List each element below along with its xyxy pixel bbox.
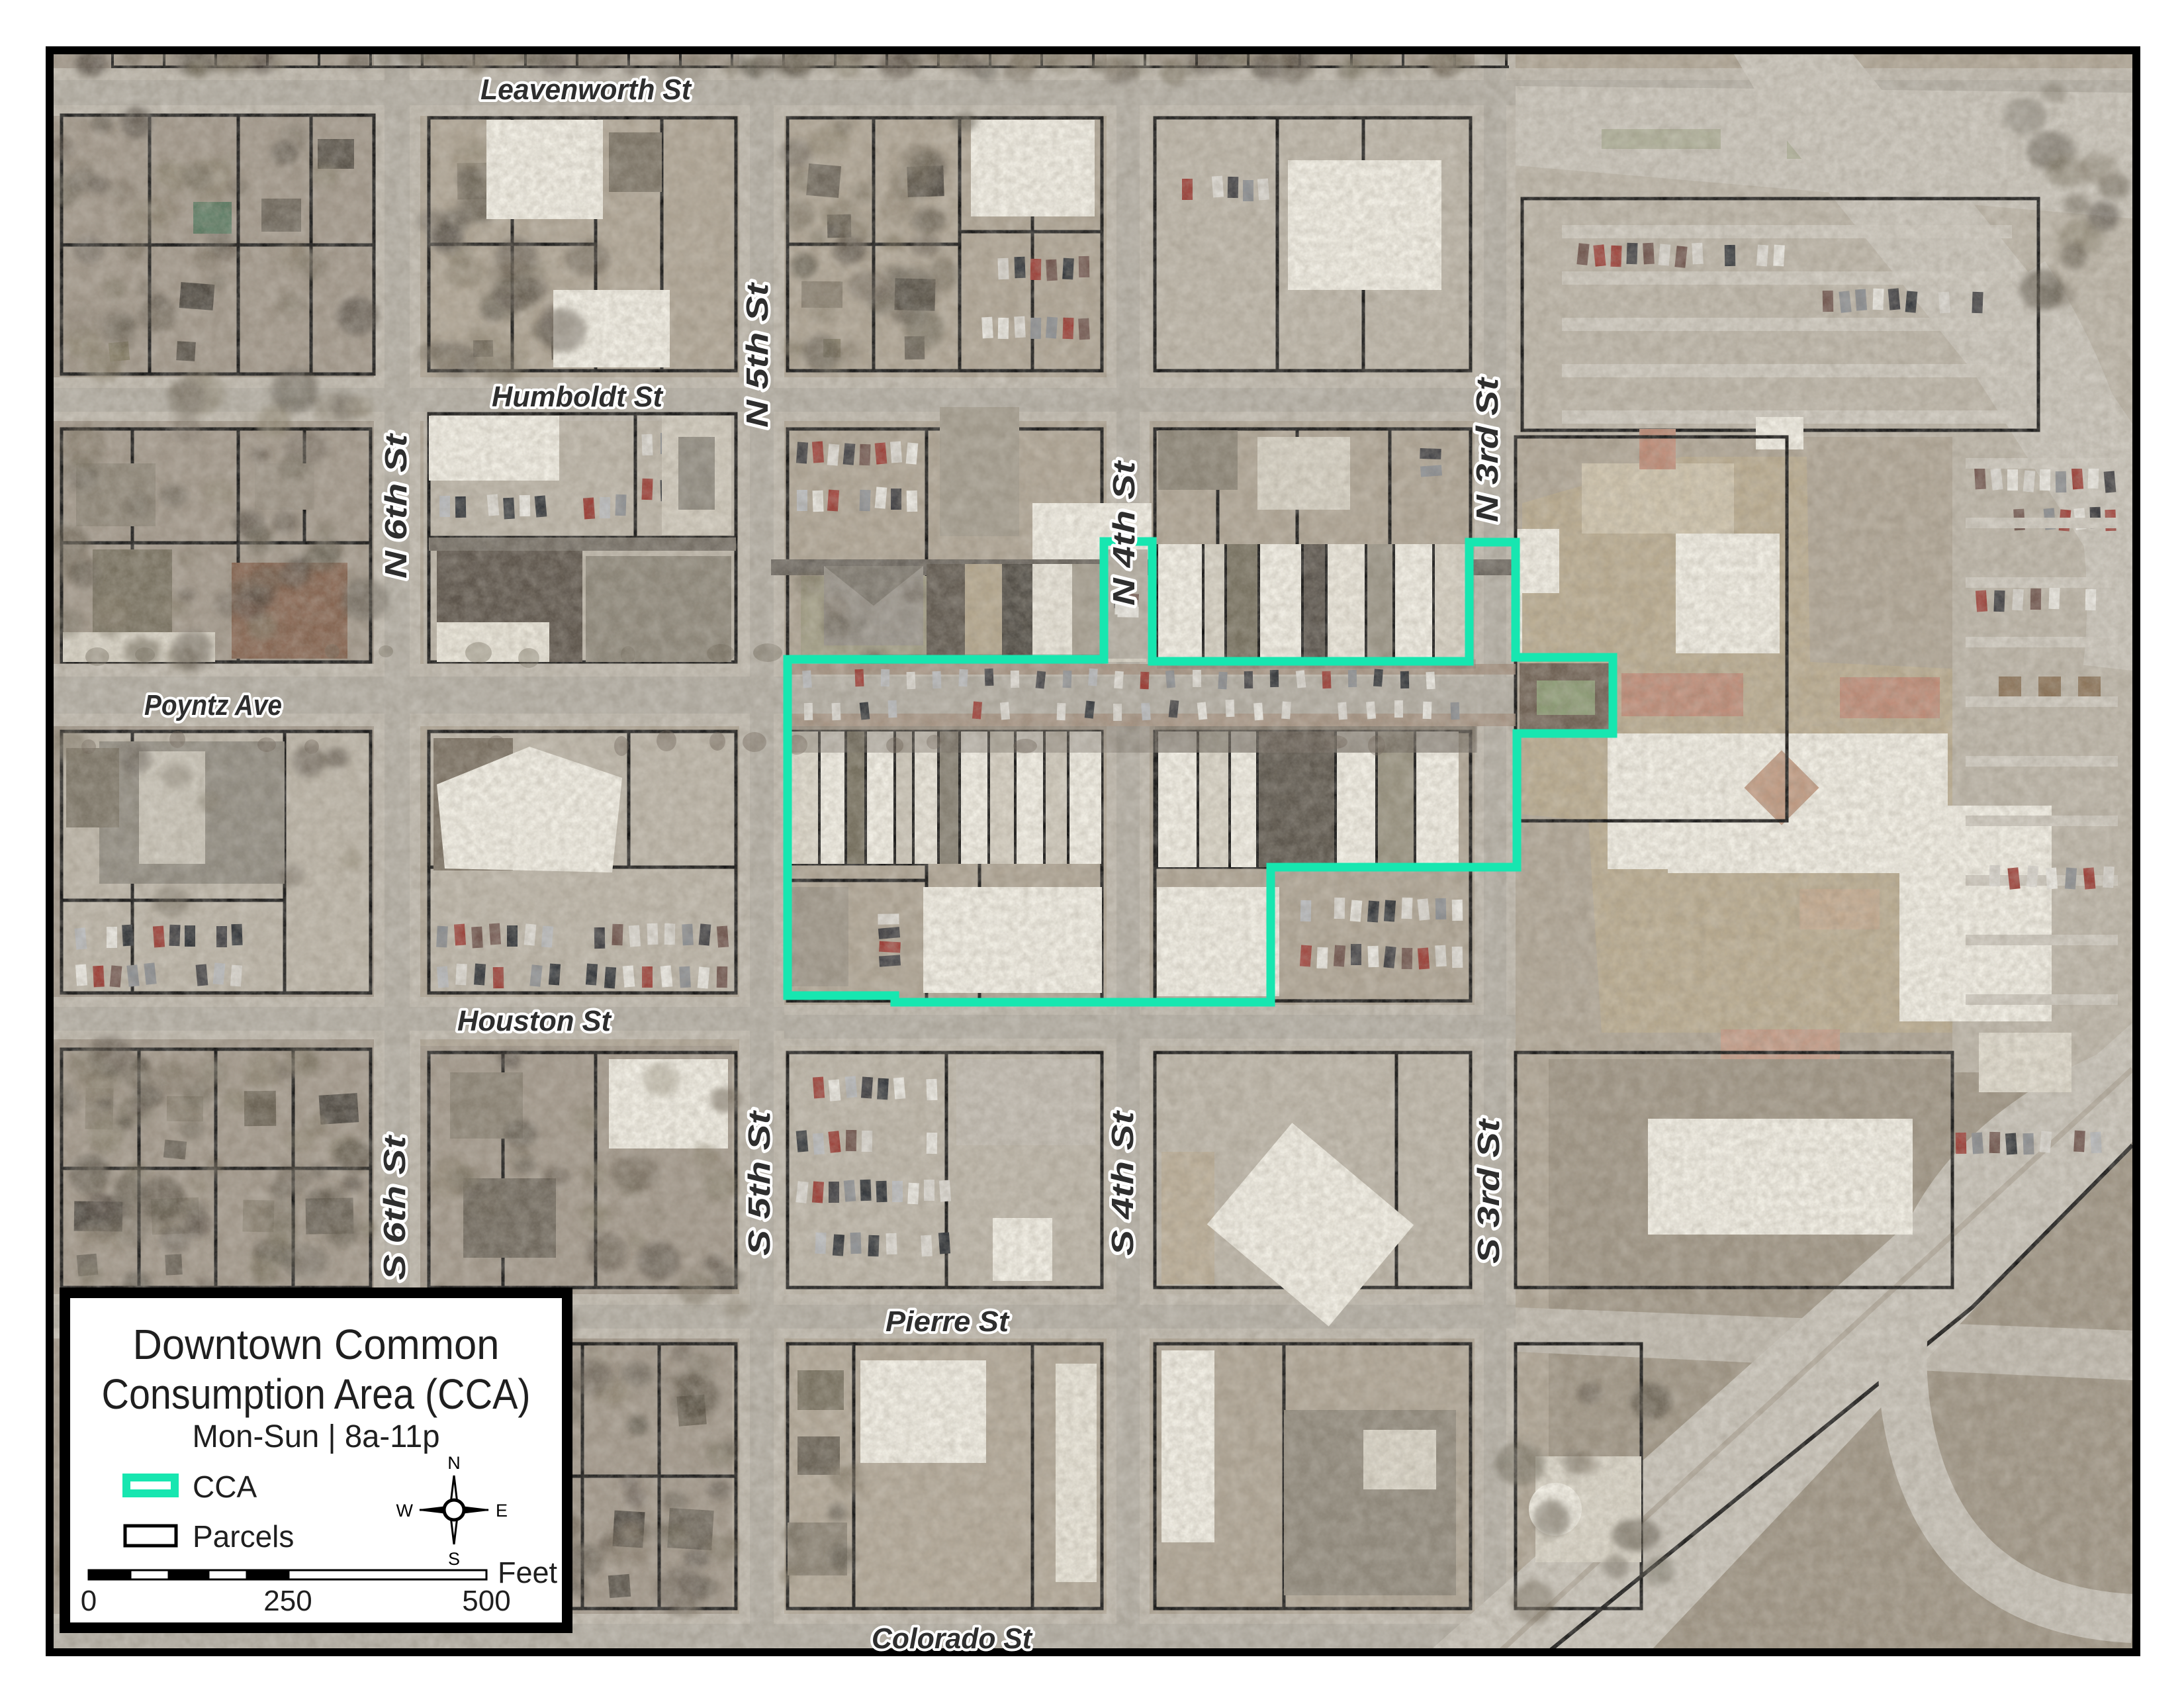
svg-text:N 5th St: N 5th St: [740, 282, 774, 428]
svg-text:S: S: [448, 1549, 460, 1569]
svg-text:N: N: [447, 1453, 461, 1473]
svg-text:S 6th St: S 6th St: [377, 1135, 412, 1280]
svg-text:Pierre St: Pierre St: [886, 1305, 1010, 1338]
svg-text:N 6th St: N 6th St: [379, 433, 413, 579]
svg-text:Houston St: Houston St: [457, 1005, 612, 1037]
svg-text:Leavenworth St: Leavenworth St: [480, 73, 692, 106]
svg-text:W: W: [396, 1501, 414, 1521]
svg-text:S 4th St: S 4th St: [1105, 1110, 1140, 1256]
svg-text:Downtown Common: Downtown Common: [133, 1321, 500, 1368]
svg-text:CCA: CCA: [193, 1470, 257, 1504]
svg-text:S 5th St: S 5th St: [742, 1110, 776, 1256]
svg-text:Parcels: Parcels: [193, 1519, 294, 1554]
svg-text:0: 0: [81, 1585, 97, 1617]
svg-text:500: 500: [462, 1585, 510, 1617]
svg-text:E: E: [496, 1501, 508, 1521]
svg-text:Mon-Sun | 8a-11p: Mon-Sun | 8a-11p: [193, 1419, 440, 1454]
svg-text:250: 250: [263, 1585, 312, 1617]
svg-text:S 3rd St: S 3rd St: [1471, 1118, 1506, 1264]
svg-text:Poyntz Ave: Poyntz Ave: [144, 689, 282, 722]
svg-text:Feet: Feet: [498, 1556, 558, 1589]
svg-text:Colorado St: Colorado St: [872, 1622, 1033, 1655]
svg-text:Consumption Area (CCA): Consumption Area (CCA): [102, 1370, 531, 1418]
svg-text:Humboldt St: Humboldt St: [492, 381, 664, 413]
svg-text:N 4th St: N 4th St: [1107, 460, 1141, 606]
svg-text:N 3rd St: N 3rd St: [1470, 377, 1504, 522]
